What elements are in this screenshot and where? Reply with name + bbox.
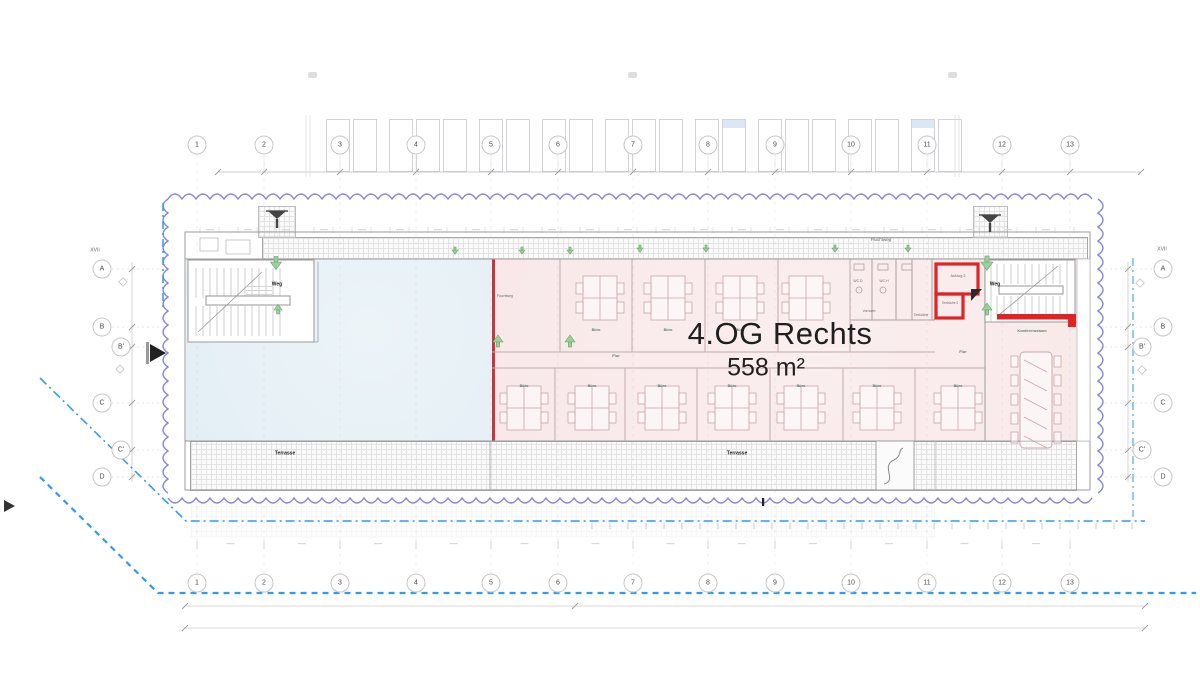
room-label-buero: Büro bbox=[658, 384, 667, 388]
room-label-buero: Büro bbox=[588, 384, 597, 388]
grid-column-marker-bottom: 7 bbox=[624, 574, 643, 593]
grid-row-marker-left: B' bbox=[112, 338, 131, 357]
room-label: XVII bbox=[90, 248, 99, 253]
room-label: Weg bbox=[990, 282, 1000, 287]
room-label: Fluchtweg bbox=[497, 294, 513, 298]
room-label-buero: Büro bbox=[728, 384, 737, 388]
room-label-buero: Büro bbox=[873, 384, 882, 388]
room-label: XVII bbox=[1157, 247, 1166, 252]
grid-column-marker-bottom: 9 bbox=[766, 574, 785, 593]
grid-column-marker-bottom: 13 bbox=[1061, 574, 1080, 593]
grid-column-marker-top: 4 bbox=[407, 136, 426, 155]
ground-hatch-band bbox=[190, 502, 935, 538]
grid-row-marker-left: C bbox=[93, 394, 112, 413]
skylight-cell bbox=[785, 119, 809, 172]
grid-column-marker-bottom: 3 bbox=[331, 574, 350, 593]
grid-column-marker-top: 12 bbox=[993, 136, 1012, 155]
skylight-glazed bbox=[723, 120, 745, 128]
grid-row-marker-right: C' bbox=[1133, 441, 1152, 460]
grid-row-marker-right: B bbox=[1154, 318, 1173, 337]
grid-column-marker-top: 1 bbox=[188, 136, 207, 155]
grid-column-marker-top: 7 bbox=[624, 136, 643, 155]
unit-area: 558 m² bbox=[727, 354, 805, 383]
grid-column-marker-top: 3 bbox=[331, 136, 350, 155]
room-label: Vorraum bbox=[863, 309, 876, 312]
room-label: WC-H bbox=[879, 279, 888, 282]
floor-plan-canvas: XVIIXVIIWegWegFluchtwegFluchtwegAufzug 2… bbox=[0, 0, 1200, 675]
grid-row-marker-left: D bbox=[93, 468, 112, 487]
room-label-buero: Büro bbox=[520, 384, 529, 388]
terrace-bottom bbox=[190, 441, 1077, 491]
terrace-top-walkway bbox=[262, 237, 1088, 260]
grid-column-marker-bottom: 5 bbox=[482, 574, 501, 593]
roof-bridge-left bbox=[258, 206, 296, 238]
room-label: Fluchtweg bbox=[871, 238, 892, 243]
grid-column-marker-bottom: 6 bbox=[549, 574, 568, 593]
grid-row-marker-right: D bbox=[1154, 468, 1173, 487]
grid-column-marker-bottom: 4 bbox=[407, 574, 426, 593]
room-label: WC-D bbox=[853, 279, 862, 282]
grid-column-marker-bottom: 8 bbox=[699, 574, 718, 593]
grid-row-marker-left: A bbox=[93, 260, 112, 279]
grid-column-marker-bottom: 10 bbox=[842, 574, 861, 593]
room-label-buero: Büro bbox=[664, 328, 673, 332]
grid-row-marker-left: C' bbox=[112, 441, 131, 460]
grid-column-marker-top: 10 bbox=[842, 136, 861, 155]
room-label: Terrasse bbox=[727, 451, 747, 456]
grid-column-marker-bottom: 12 bbox=[993, 574, 1012, 593]
room-label: Terrasse bbox=[275, 451, 295, 456]
grid-column-marker-top: 11 bbox=[918, 136, 937, 155]
skylight-cell bbox=[506, 119, 530, 172]
unit-other-area bbox=[186, 259, 492, 441]
grid-row-marker-right: B' bbox=[1133, 338, 1152, 357]
roof-bridge-right bbox=[973, 206, 1008, 238]
skylight-cell bbox=[353, 119, 377, 172]
unit-title: 4.OG Rechts bbox=[688, 316, 873, 352]
grid-row-marker-right: A bbox=[1154, 260, 1173, 279]
room-label-buero: Büro bbox=[954, 384, 963, 388]
room-label: Teeküche bbox=[914, 313, 929, 316]
skylight-cell bbox=[443, 119, 467, 172]
grid-column-marker-bottom: 1 bbox=[188, 574, 207, 593]
room-label: Teeküche 2 bbox=[942, 301, 958, 304]
room-label: Weg bbox=[272, 282, 282, 287]
grid-column-marker-top: 13 bbox=[1061, 136, 1080, 155]
grid-column-marker-top: 5 bbox=[482, 136, 501, 155]
grid-column-marker-bottom: 11 bbox=[918, 574, 937, 593]
grid-column-marker-bottom: 2 bbox=[255, 574, 274, 593]
skylight-cell bbox=[938, 119, 962, 172]
room-label-buero: Büro bbox=[797, 384, 806, 388]
room-label: Konferenzraum bbox=[1017, 329, 1046, 333]
room-label-buero: Büro bbox=[592, 328, 601, 332]
grid-column-marker-top: 8 bbox=[699, 136, 718, 155]
room-label: Aufzug 2 bbox=[951, 274, 966, 278]
grid-column-marker-top: 2 bbox=[255, 136, 274, 155]
skylight-cell bbox=[875, 119, 899, 172]
room-label: Flur bbox=[959, 350, 967, 354]
skylight-cell bbox=[569, 119, 593, 172]
skylight-cell bbox=[659, 119, 683, 172]
skylight-glazed bbox=[912, 120, 934, 128]
grid-row-marker-left: B bbox=[93, 318, 112, 337]
room-label: Flur bbox=[612, 354, 620, 358]
grid-row-marker-right: C bbox=[1154, 394, 1173, 413]
grid-column-marker-top: 9 bbox=[766, 136, 785, 155]
skylight-cell bbox=[812, 119, 836, 172]
grid-column-marker-top: 6 bbox=[549, 136, 568, 155]
